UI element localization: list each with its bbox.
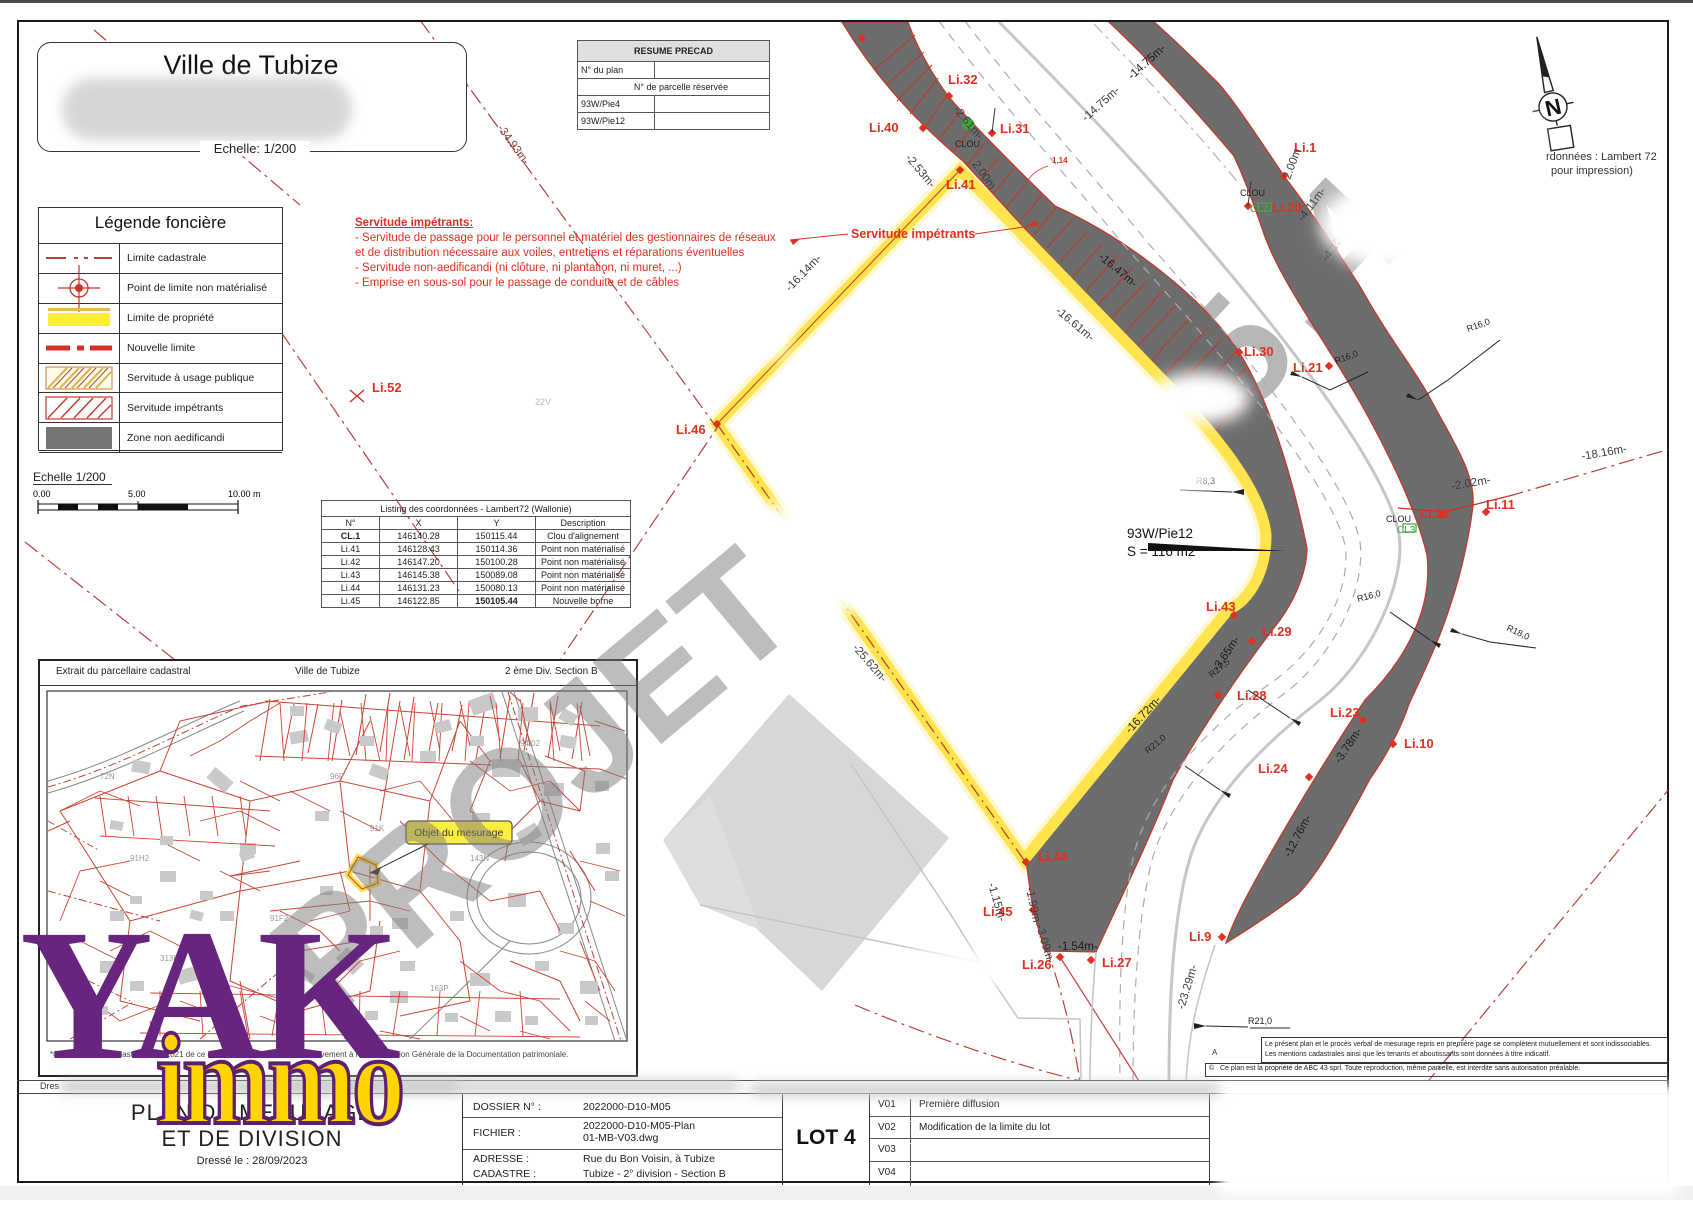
svg-text:R18,0: R18,0 bbox=[1505, 623, 1531, 642]
svg-text:rdonnées : Lambert 72: rdonnées : Lambert 72 bbox=[1546, 151, 1657, 163]
svg-text:Li.41: Li.41 bbox=[946, 177, 976, 192]
svg-text:Objet du mesurage: Objet du mesurage bbox=[414, 827, 503, 839]
svg-text:Li.31: Li.31 bbox=[1000, 121, 1030, 136]
svg-text:91K: 91K bbox=[370, 824, 385, 833]
svg-text:1,14: 1,14 bbox=[1052, 156, 1068, 165]
svg-text:Li.52: Li.52 bbox=[372, 380, 402, 395]
svg-text:pour impression): pour impression) bbox=[1551, 165, 1633, 177]
svg-text:72N: 72N bbox=[100, 772, 115, 781]
svg-text:R16,0: R16,0 bbox=[1356, 588, 1382, 604]
svg-text:Li.46: Li.46 bbox=[676, 422, 706, 437]
svg-text:93W/Pie12: 93W/Pie12 bbox=[1127, 526, 1193, 541]
svg-text:CLOU: CLOU bbox=[1386, 514, 1411, 524]
svg-text:143N: 143N bbox=[470, 854, 489, 863]
svg-text:Li.40: Li.40 bbox=[869, 120, 899, 135]
svg-text:Li.11: Li.11 bbox=[1486, 497, 1515, 512]
svg-text:R16,0: R16,0 bbox=[1465, 316, 1491, 334]
svg-text:Li.30: Li.30 bbox=[1244, 344, 1274, 359]
svg-text:91H2: 91H2 bbox=[130, 854, 150, 863]
svg-text:Li.29: Li.29 bbox=[1262, 624, 1292, 639]
svg-text:R21,0: R21,0 bbox=[1248, 1016, 1272, 1026]
svg-text:Li.10: Li.10 bbox=[1404, 736, 1434, 751]
svg-text:CL3: CL3 bbox=[1397, 525, 1416, 536]
svg-text:Li.44: Li.44 bbox=[1038, 849, 1068, 864]
svg-text:-1.54m-: -1.54m- bbox=[1058, 941, 1098, 953]
svg-text:Li.21: Li.21 bbox=[1293, 360, 1323, 375]
svg-text:96F: 96F bbox=[330, 772, 344, 781]
svg-text:-14.75m-: -14.75m- bbox=[1080, 84, 1122, 124]
svg-text:-23.29m-: -23.29m- bbox=[1175, 963, 1200, 1011]
svg-text:-18.16m-: -18.16m- bbox=[1580, 443, 1628, 463]
svg-text:Li.28: Li.28 bbox=[1237, 688, 1267, 703]
svg-text:Li.23: Li.23 bbox=[1330, 705, 1360, 720]
svg-text:-34.93m-: -34.93m- bbox=[495, 123, 532, 167]
svg-text:-2.53m-: -2.53m- bbox=[903, 152, 938, 190]
svg-text:CL2: CL2 bbox=[1250, 204, 1269, 215]
svg-text:Li.22: Li.22 bbox=[1420, 506, 1450, 521]
svg-text:22V: 22V bbox=[535, 397, 551, 407]
svg-text:CLOU: CLOU bbox=[955, 139, 980, 149]
svg-text:Li.43: Li.43 bbox=[1206, 599, 1236, 614]
svg-text:CLOU: CLOU bbox=[1240, 188, 1265, 198]
svg-text:Li.24: Li.24 bbox=[1258, 761, 1288, 776]
svg-text:Li.27: Li.27 bbox=[1102, 955, 1132, 970]
svg-text:163P: 163P bbox=[430, 984, 449, 993]
svg-text:94/02: 94/02 bbox=[520, 739, 541, 748]
svg-text:Li.9: Li.9 bbox=[1189, 929, 1211, 944]
svg-text:Li.32: Li.32 bbox=[948, 72, 978, 87]
svg-text:Li.20: Li.20 bbox=[1272, 200, 1302, 215]
svg-text:Servitude impétrants: Servitude impétrants bbox=[851, 227, 975, 241]
